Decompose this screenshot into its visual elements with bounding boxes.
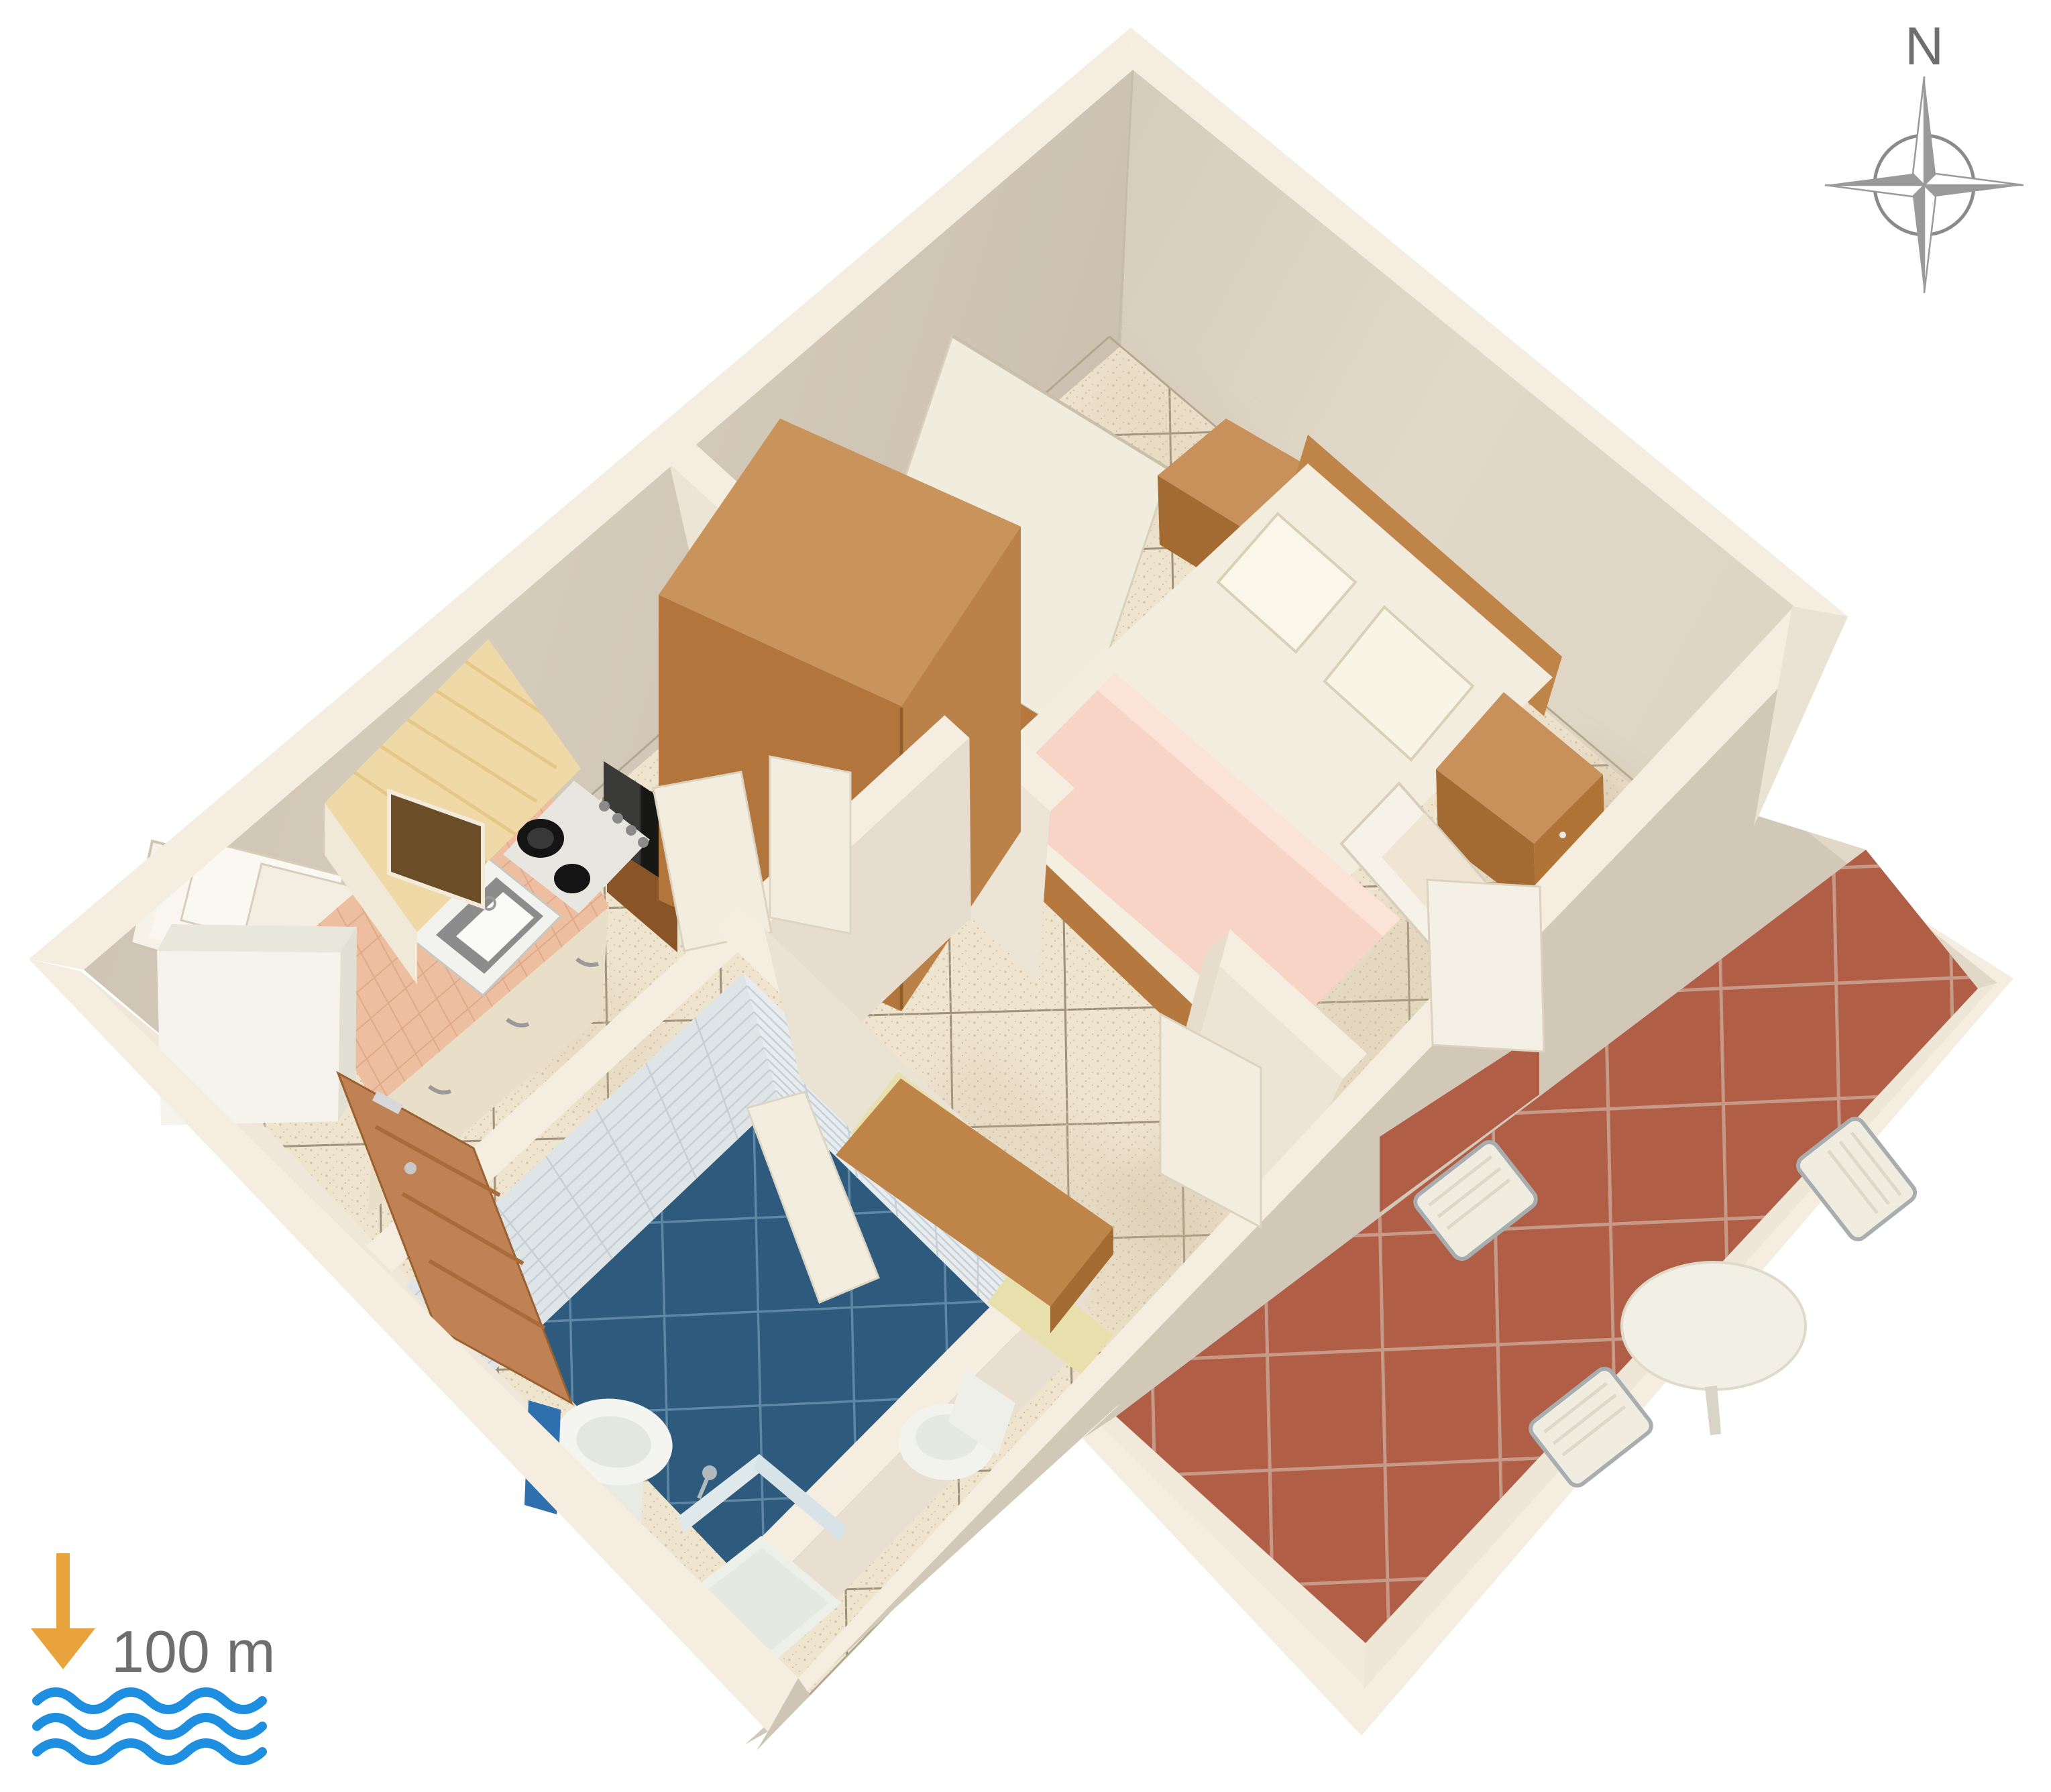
svg-text:N: N — [1905, 16, 1944, 76]
svg-text:100 m: 100 m — [111, 1618, 276, 1685]
